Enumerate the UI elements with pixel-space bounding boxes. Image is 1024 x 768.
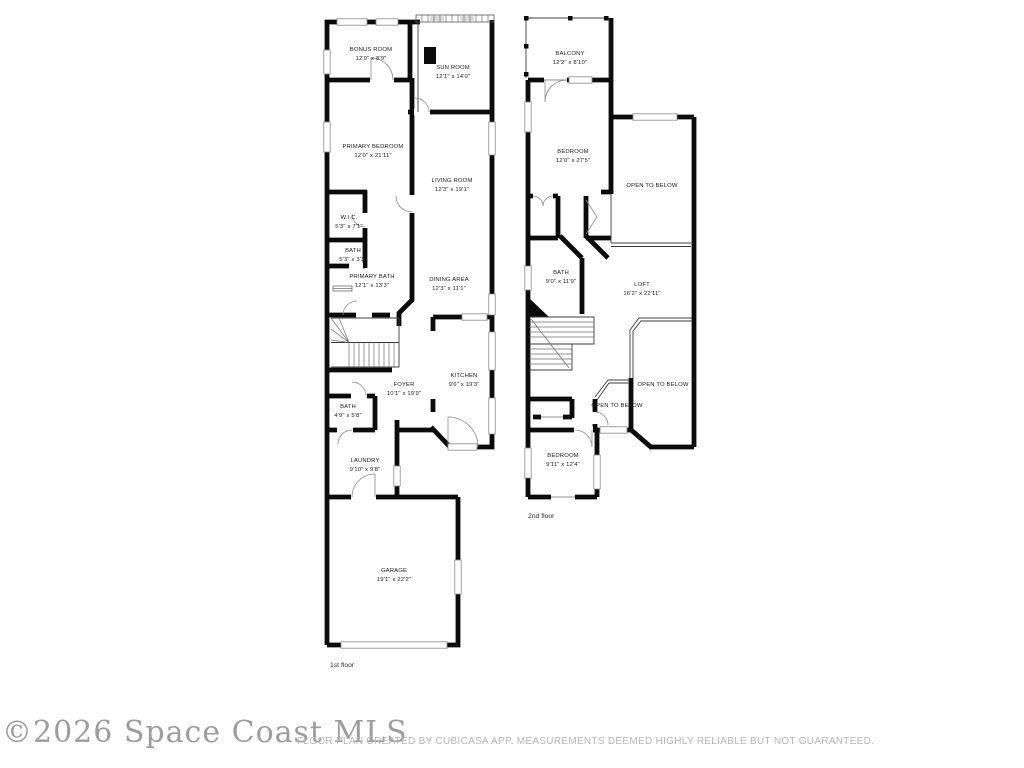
- room-dims-kitchen: 9'6" x 19'3": [449, 382, 480, 388]
- room-dims-foyer: 10'1" x 19'9": [387, 391, 421, 397]
- chimney-block: [424, 47, 436, 64]
- room-dims-bath: 5'3" x 3'3": [339, 257, 366, 263]
- room-label-balcony: BALCONY: [555, 51, 584, 57]
- room-dims-bedroom2: 9'11" x 12'4": [546, 462, 580, 468]
- room-dims-bath3: 9'0" x 11'9": [546, 279, 576, 285]
- room-dims-dining-area: 12'3" x 11'1": [432, 286, 466, 292]
- room-label-dining-area: DINING AREA: [429, 277, 469, 283]
- room-dims-primary-bath: 12'1" x 13'3": [355, 283, 389, 289]
- room-dims-living-room: 12'3" x 19'1": [435, 187, 469, 193]
- room-label-kitchen: KITCHEN: [451, 373, 478, 379]
- room-dims-wic: 5'3" x 7'1": [335, 224, 362, 230]
- room-dims-balcony: 12'2" x 8'10": [553, 60, 587, 66]
- floor-plan-page: BONUS ROOM 12'0" x 8'9" SUN ROOM 12'1" x…: [0, 0, 1024, 768]
- room-dims-garage: 19'1" x 22'2": [377, 577, 411, 583]
- room-label-wic: W.I.C.: [341, 215, 358, 221]
- room-dims-bonus-room: 12'0" x 8'9": [356, 56, 387, 62]
- open-to-below-left-label: OPEN TO BELOW: [591, 403, 642, 409]
- room-label-laundry: LAUNDRY: [350, 458, 379, 464]
- room-label-bedroom2: BEDROOM: [547, 453, 579, 459]
- floor1-plan: BONUS ROOM 12'0" x 8'9" SUN ROOM 12'1" x…: [324, 15, 495, 669]
- room-label-bath3: BATH: [553, 270, 569, 276]
- room-dims-laundry: 9'10" x 9'8": [350, 467, 381, 473]
- floor1-walls: [327, 20, 492, 645]
- room-label-loft: LOFT: [634, 282, 650, 288]
- room-dims-bath2: 4'9" x 5'8": [334, 413, 361, 419]
- floor2-door-openings: [544, 77, 593, 501]
- balcony-railing: [524, 16, 609, 78]
- floor2-caption: 2nd floor: [528, 513, 555, 520]
- floor-plan-canvas: BONUS ROOM 12'0" x 8'9" SUN ROOM 12'1" x…: [0, 0, 1024, 768]
- room-label-primary-bedroom: PRIMARY BEDROOM: [343, 144, 404, 150]
- open-to-below-railings: [595, 194, 692, 400]
- room-dims-loft: 16'2" x 22'11": [623, 291, 660, 297]
- room-label-garage: GARAGE: [381, 568, 407, 574]
- room-label-living-room: LIVING ROOM: [432, 178, 473, 184]
- open-to-below-right-label: OPEN TO BELOW: [637, 382, 688, 388]
- floor2-staircase: [529, 317, 594, 370]
- room-label-sun-room: SUN ROOM: [436, 65, 470, 71]
- floor2-walls: [528, 18, 694, 497]
- floor1-caption: 1st floor: [330, 662, 355, 669]
- sunroom-screen-band: [416, 15, 494, 112]
- room-label-primary-bath: PRIMARY BATH: [349, 274, 394, 280]
- room-label-bath2: BATH: [340, 404, 356, 410]
- floor1-staircase: [331, 318, 399, 367]
- floor2-plan: BALCONY 12'2" x 8'10" BEDROOM 12'0" x 27…: [524, 16, 694, 520]
- garage-door: [341, 642, 447, 648]
- room-label-bonus-room: BONUS ROOM: [350, 47, 392, 53]
- under-stair-wedge: [529, 298, 549, 317]
- room-label-bath: BATH: [345, 248, 361, 254]
- room-label-foyer: FOYER: [393, 382, 414, 388]
- room-label-bedroom1: BEDROOM: [557, 149, 589, 155]
- cubicasa-disclaimer: FLOOR PLAN CREATED BY CUBICASA APP. MEAS…: [297, 736, 874, 747]
- room-dims-sun-room: 12'1" x 14'0": [436, 74, 470, 80]
- open-to-below-top-label: OPEN TO BELOW: [626, 183, 677, 189]
- room-dims-bedroom1: 12'0" x 27'5": [556, 158, 590, 164]
- room-dims-primary-bedroom: 12'0" x 21'11": [354, 153, 391, 159]
